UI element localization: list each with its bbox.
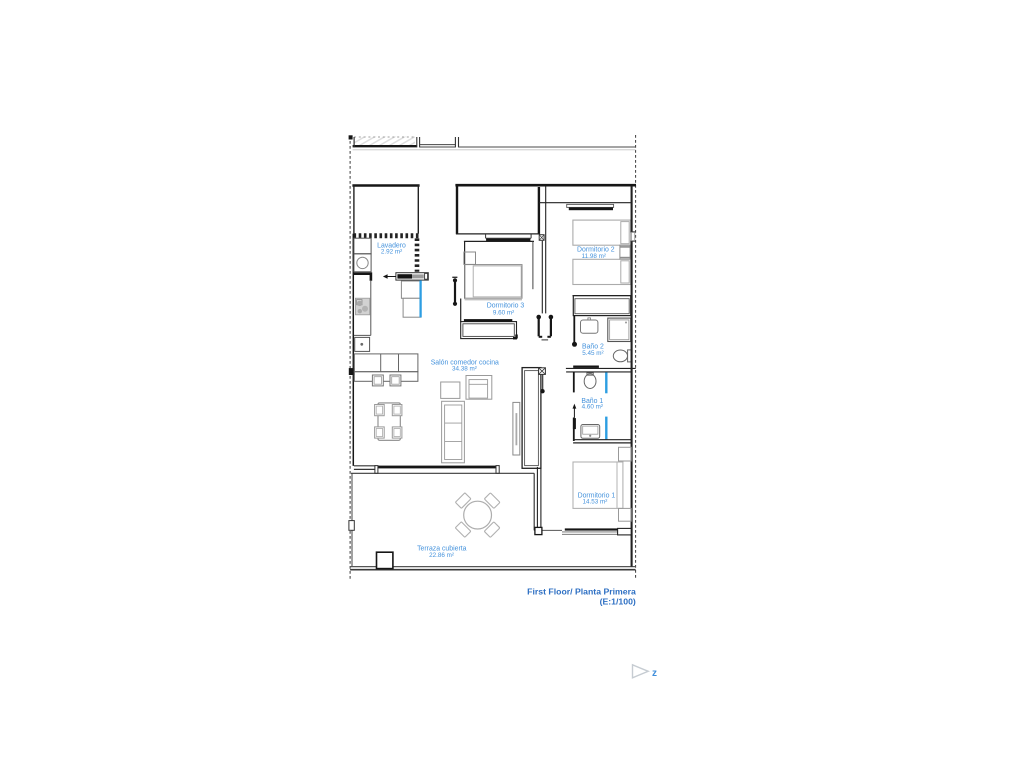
svg-text:(E:1/100): (E:1/100) (600, 597, 636, 607)
svg-text:First Floor/ Planta Primera: First Floor/ Planta Primera (527, 586, 636, 596)
svg-text:Dormitorio 3: Dormitorio 3 (487, 303, 525, 310)
svg-text:34.38 m²: 34.38 m² (452, 366, 477, 373)
svg-text:9.60 m²: 9.60 m² (493, 310, 514, 317)
svg-text:5.45 m²: 5.45 m² (582, 350, 603, 357)
svg-text:z: z (652, 668, 657, 679)
svg-text:4.60 m²: 4.60 m² (582, 403, 603, 410)
svg-text:14.53 m²: 14.53 m² (582, 499, 607, 506)
svg-text:2.92 m²: 2.92 m² (381, 249, 402, 256)
svg-text:22.86 m²: 22.86 m² (429, 552, 454, 559)
svg-text:11.98 m²: 11.98 m² (582, 253, 606, 260)
